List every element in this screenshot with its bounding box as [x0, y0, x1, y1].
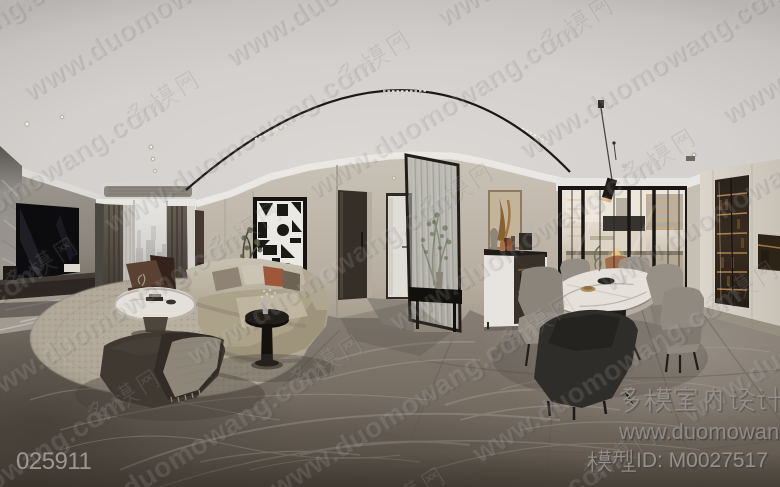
svg-text:025911: 025911: [16, 448, 91, 475]
svg-text:www.duomowang: www.duomowang: [618, 419, 780, 444]
svg-text:ID: M0027517: ID: M0027517: [636, 449, 768, 472]
